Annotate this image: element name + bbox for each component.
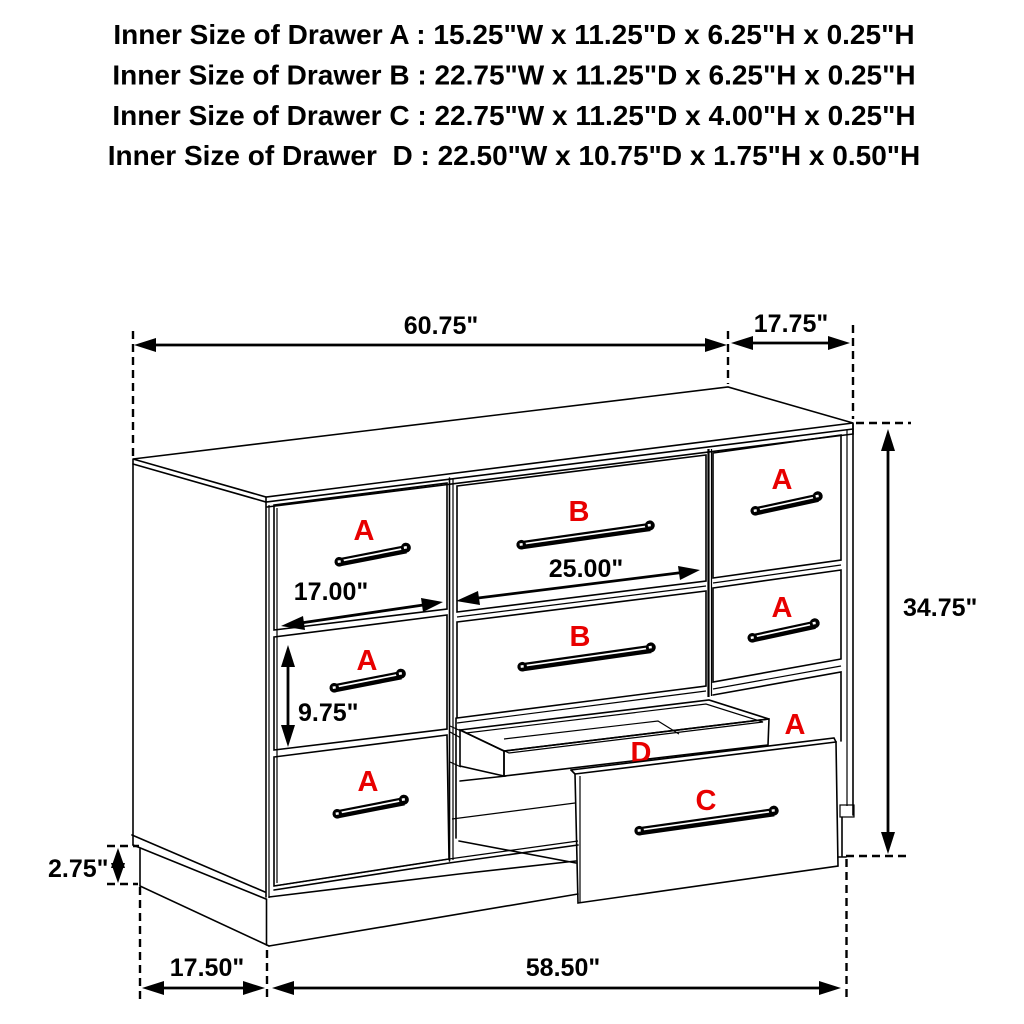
- svg-text:B: B: [569, 496, 590, 528]
- svg-text:Inner Size of Drawer D : 22.5: Inner Size of Drawer D : 22.50"W x 10.75…: [108, 140, 921, 171]
- svg-text:A: A: [772, 592, 793, 624]
- svg-text:A: A: [772, 464, 793, 496]
- svg-text:Inner Size of Drawer A : 15.25: Inner Size of Drawer A : 15.25"W x 11.25…: [113, 19, 914, 50]
- svg-text:17.00": 17.00": [294, 578, 368, 606]
- svg-text:25.00": 25.00": [549, 555, 623, 583]
- svg-text:Inner Size of Drawer B : 22.75: Inner Size of Drawer B : 22.75"W x 11.25…: [112, 60, 915, 91]
- svg-text:9.75": 9.75": [298, 699, 359, 727]
- svg-text:A: A: [357, 645, 378, 677]
- svg-text:Inner Size of Drawer C : 22.75: Inner Size of Drawer C : 22.75"W x 11.25…: [112, 100, 915, 131]
- svg-text:B: B: [570, 621, 591, 653]
- svg-text:17.50": 17.50": [170, 954, 244, 982]
- svg-text:34.75": 34.75": [903, 594, 977, 622]
- svg-text:D: D: [631, 737, 652, 769]
- svg-text:A: A: [785, 709, 806, 741]
- svg-text:A: A: [354, 515, 375, 547]
- svg-text:2.75": 2.75": [48, 855, 109, 883]
- svg-text:A: A: [358, 766, 379, 798]
- svg-text:C: C: [696, 785, 717, 817]
- svg-text:17.75": 17.75": [754, 310, 828, 338]
- svg-text:58.50": 58.50": [526, 954, 600, 982]
- svg-text:60.75": 60.75": [404, 312, 478, 340]
